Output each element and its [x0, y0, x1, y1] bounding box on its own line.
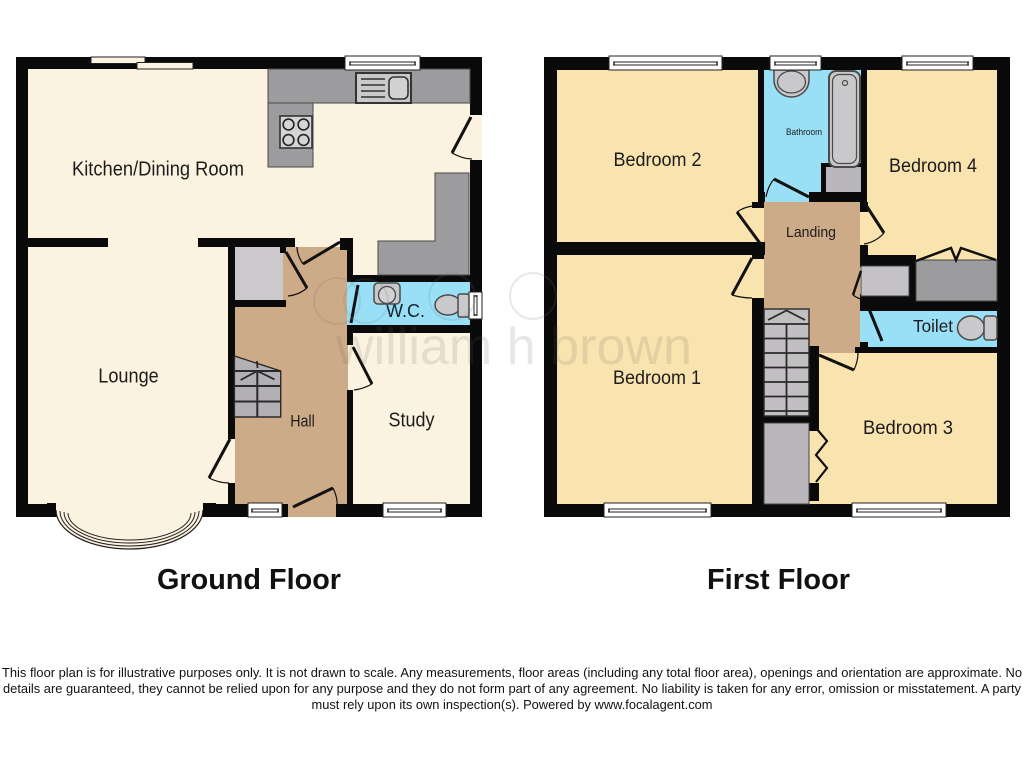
svg-text:details are guaranteed, they c: details are guaranteed, they cannot be r… — [3, 681, 1021, 696]
svg-text:Landing: Landing — [786, 224, 836, 241]
svg-text:Bedroom 3: Bedroom 3 — [863, 417, 953, 439]
svg-text:must rely upon its own inspect: must rely upon its own inspection(s). Po… — [312, 697, 713, 712]
svg-text:Bedroom 2: Bedroom 2 — [614, 149, 702, 171]
svg-text:Lounge: Lounge — [98, 366, 159, 388]
svg-text:Hall: Hall — [290, 412, 315, 431]
svg-text:Kitchen/Dining Room: Kitchen/Dining Room — [72, 159, 244, 181]
svg-text:First Floor: First Floor — [707, 564, 850, 596]
svg-text:This floor plan is for illustr: This floor plan is for illustrative purp… — [2, 665, 1022, 680]
svg-text:william h brown: william h brown — [335, 318, 692, 376]
svg-text:Bedroom 4: Bedroom 4 — [889, 155, 977, 177]
svg-text:Toilet: Toilet — [913, 316, 953, 336]
svg-text:Bathroom: Bathroom — [786, 127, 822, 138]
svg-text:Study: Study — [389, 410, 435, 432]
svg-text:Ground Floor: Ground Floor — [157, 564, 341, 596]
